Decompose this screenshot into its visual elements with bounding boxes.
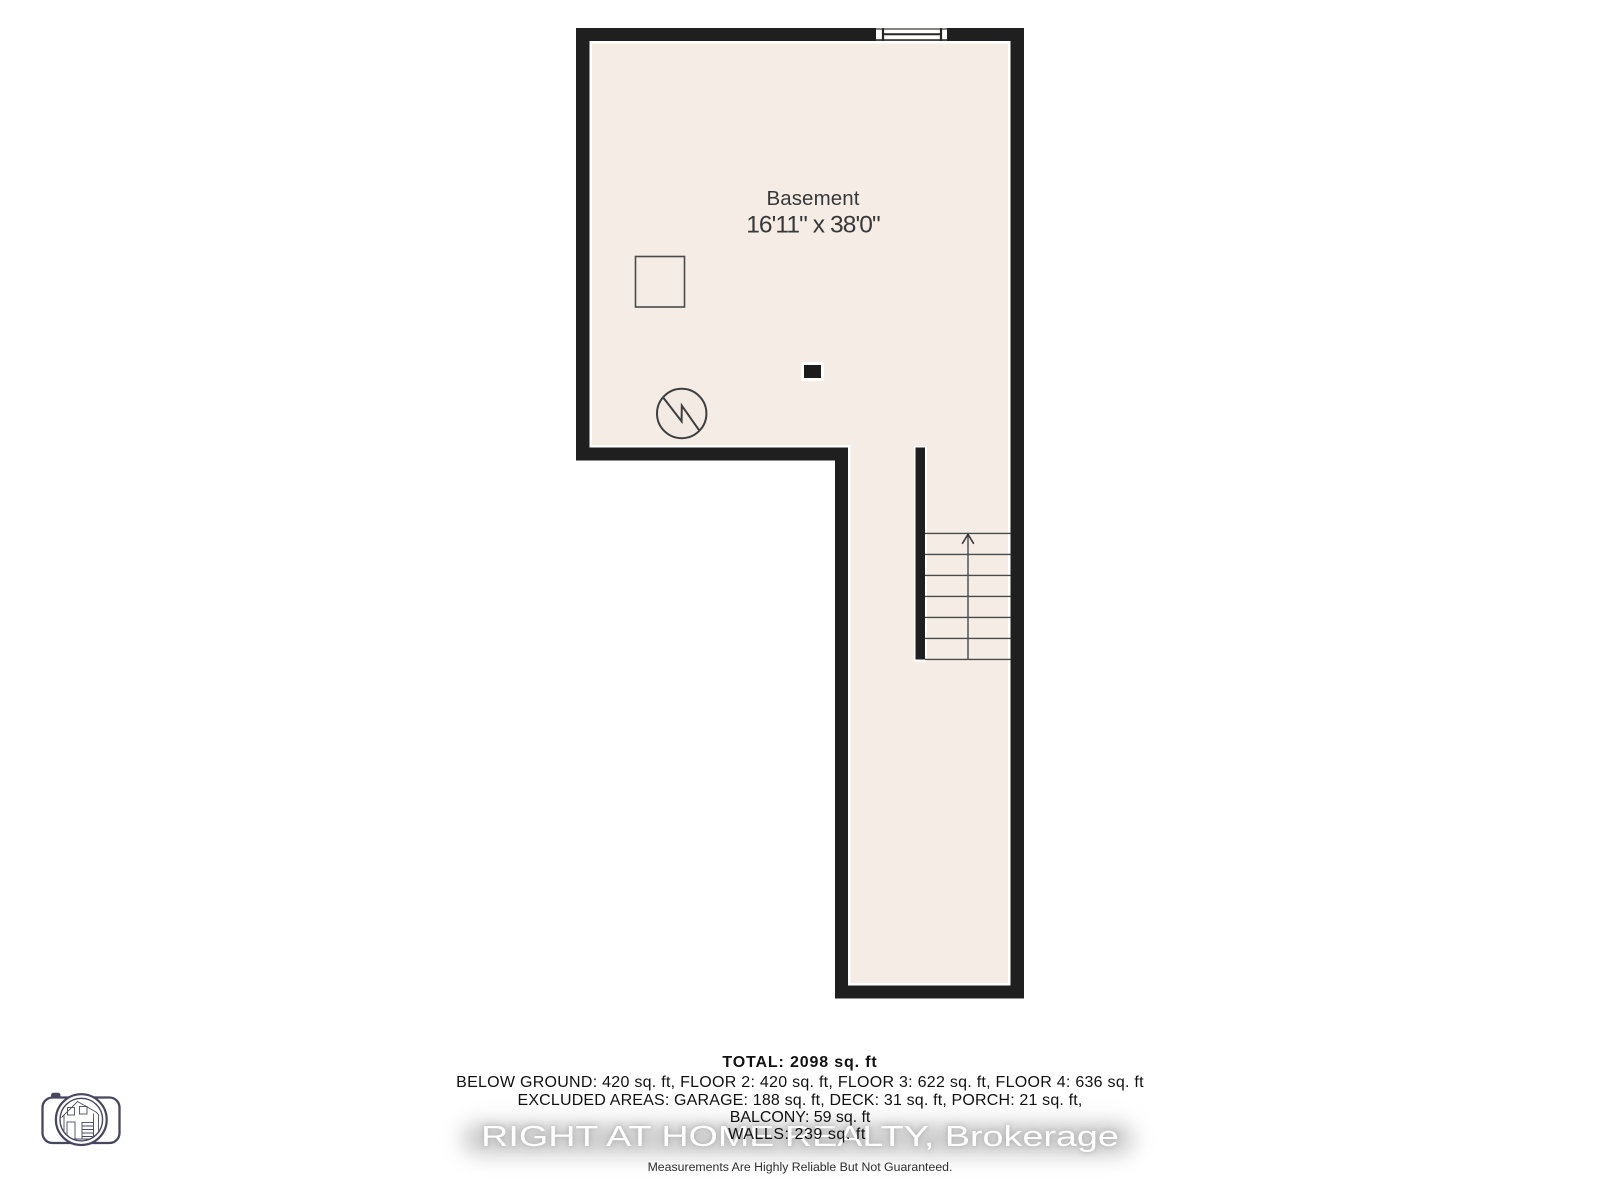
svg-text:Basement: Basement: [766, 187, 859, 210]
svg-text:16'11" x 38'0": 16'11" x 38'0": [746, 212, 880, 239]
